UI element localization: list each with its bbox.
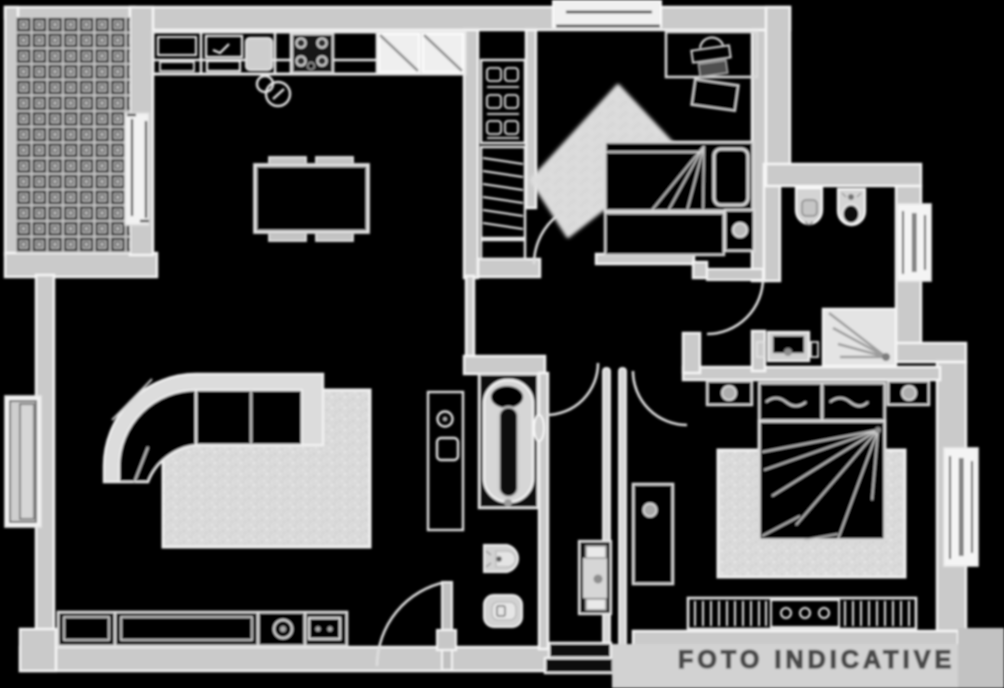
- svg-text:FOTO INDICATIVE: FOTO INDICATIVE: [678, 646, 955, 674]
